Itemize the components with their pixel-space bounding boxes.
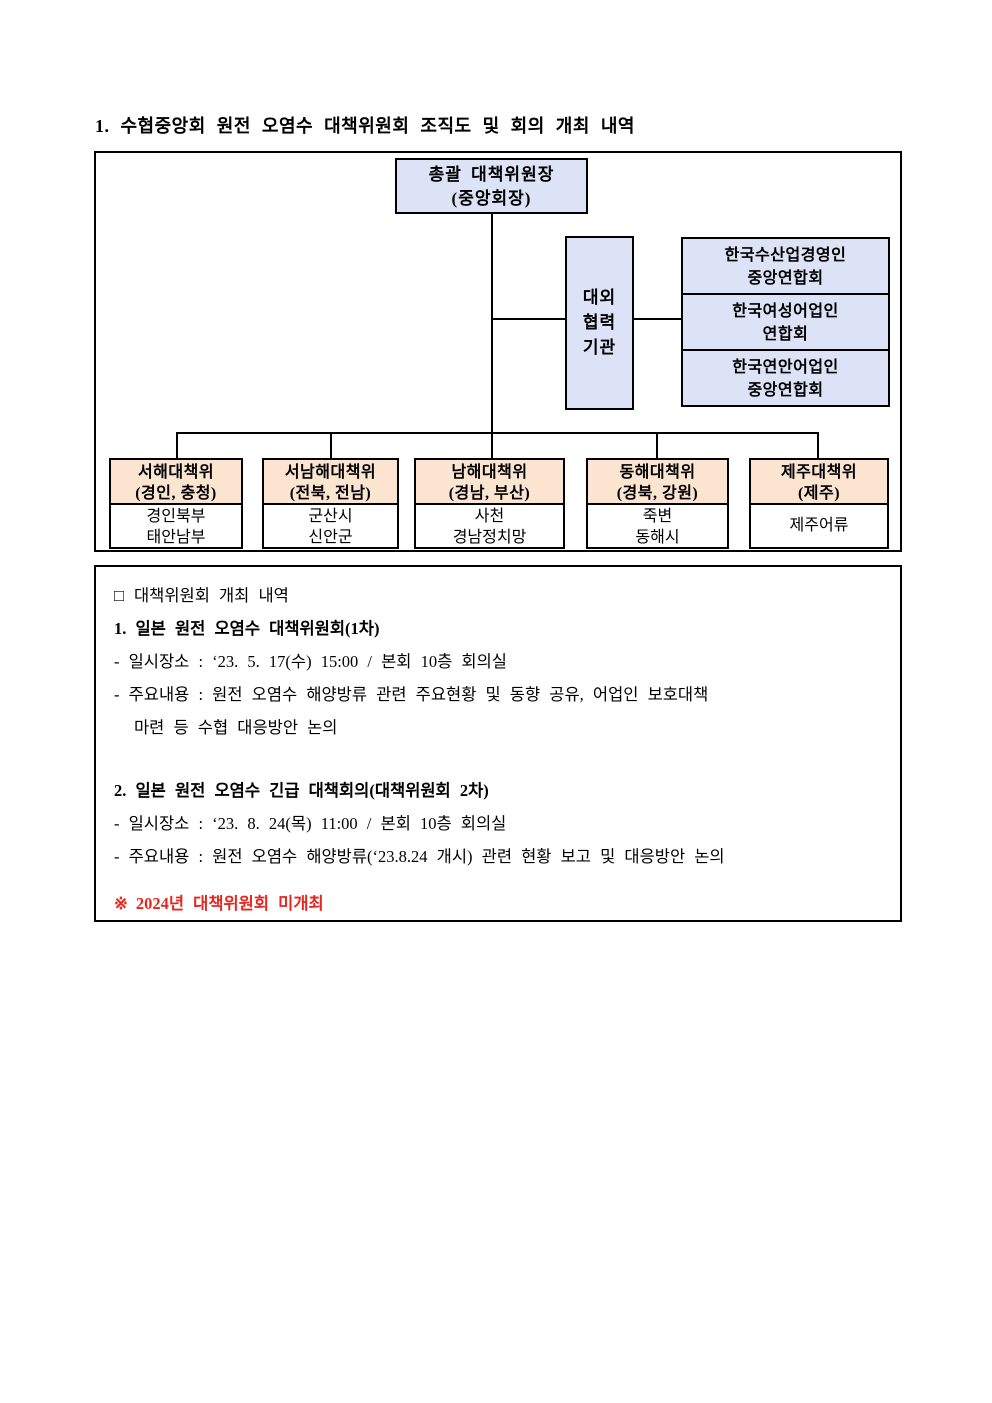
region-member: 경인북부 (111, 506, 241, 527)
external-label-line1: 대외 (567, 285, 632, 310)
external-cooperation-box: 대외 협력 기관 (565, 236, 634, 410)
meeting1-heading: 1. 일본 원전 오염수 대책위원회(1차) (114, 612, 882, 645)
external-label-line3: 기관 (567, 335, 632, 360)
region-name: 제주대책위 (751, 462, 887, 483)
meeting1-content-line2: 마련 등 수협 대응방안 논의 (114, 711, 882, 744)
connector-horizontal-external (493, 318, 565, 320)
region-members: 죽변 동해시 (586, 503, 729, 549)
meeting2-content-line1: - 주요내용 : 원전 오염수 해양방류(‘23.8.24 개시) 관련 현황 … (114, 840, 882, 873)
region-members: 사천 경남정치망 (414, 503, 565, 549)
connector-drop-4 (656, 432, 658, 458)
meeting2-heading: 2. 일본 원전 오염수 긴급 대책회의(대책위원회 2차) (114, 774, 882, 807)
region-name: 서해대책위 (111, 462, 241, 483)
regional-committee-east-sea: 동해대책위 (경북, 강원) 죽변 동해시 (586, 458, 729, 549)
region-name: 서남해대책위 (264, 462, 397, 483)
region-area: (제주) (751, 483, 887, 504)
regional-committee-jeju: 제주대책위 (제주) 제주어류 (749, 458, 889, 549)
region-member: 신안군 (264, 527, 397, 548)
regional-committee-southwest-sea: 서남해대책위 (전북, 전남) 군산시 신안군 (262, 458, 399, 549)
meetings-section-title-text: 대책위원회 개최 내역 (134, 586, 289, 605)
spacer (114, 744, 882, 774)
org-chart: 총괄 대책위원장 (중앙회장) 대외 협력 기관 한국수산업경영인 중앙연합회 … (94, 151, 902, 552)
external-org-name-line2: 중앙연합회 (683, 379, 888, 402)
region-header: 서남해대책위 (전북, 전남) (262, 458, 399, 505)
region-area: (경북, 강원) (588, 483, 727, 504)
external-orgs-stack: 한국수산업경영인 중앙연합회 한국여성어업인 연합회 한국연안어업인 중앙연합회 (681, 237, 890, 407)
checkbox-icon: □ (114, 586, 124, 605)
meeting1-when-where: - 일시장소 : ‘23. 5. 17(수) 15:00 / 본회 10층 회의… (114, 645, 882, 678)
external-org-name-line2: 중앙연합회 (683, 267, 888, 290)
no-meeting-2024-note: ※2024년 대책위원회 미개최 (114, 887, 882, 920)
connector-drop-3 (491, 432, 493, 458)
external-org-coastal-fishers: 한국연안어업인 중앙연합회 (681, 349, 890, 407)
external-label-line2: 협력 (567, 310, 632, 335)
region-header: 제주대책위 (제주) (749, 458, 889, 505)
region-member: 죽변 (588, 506, 727, 527)
no-meeting-2024-note-text: 2024년 대책위원회 미개최 (136, 894, 324, 913)
chairman-subtitle: (중앙회장) (397, 187, 586, 211)
region-members: 제주어류 (749, 503, 889, 549)
region-header: 동해대책위 (경북, 강원) (586, 458, 729, 505)
connector-horizontal-distribution (176, 432, 819, 434)
connector-drop-2 (330, 432, 332, 458)
external-org-name-line1: 한국연안어업인 (683, 356, 888, 379)
meetings-section-title: □대책위원회 개최 내역 (114, 579, 882, 612)
region-header: 남해대책위 (경남, 부산) (414, 458, 565, 505)
region-name: 동해대책위 (588, 462, 727, 483)
meeting1-content-line1: - 주요내용 : 원전 오염수 해양방류 관련 주요현황 및 동향 공유, 어업… (114, 678, 882, 711)
meeting2-when-where: - 일시장소 : ‘23. 8. 24(목) 11:00 / 본회 10층 회의… (114, 807, 882, 840)
external-org-name-line1: 한국여성어업인 (683, 300, 888, 323)
meetings-section: □대책위원회 개최 내역 1. 일본 원전 오염수 대책위원회(1차) - 일시… (94, 565, 902, 922)
connector-horizontal-orgs (634, 318, 681, 320)
region-members: 군산시 신안군 (262, 503, 399, 549)
region-area: (경남, 부산) (416, 483, 563, 504)
external-org-name-line2: 연합회 (683, 323, 888, 346)
connector-drop-1 (176, 432, 178, 458)
region-members: 경인북부 태안남부 (109, 503, 243, 549)
external-org-name-line1: 한국수산업경영인 (683, 244, 888, 267)
spacer (114, 873, 882, 887)
reference-mark-icon: ※ (114, 894, 128, 913)
region-member: 제주어류 (751, 505, 887, 547)
region-member: 태안남부 (111, 527, 241, 548)
regional-committee-west-sea: 서해대책위 (경인, 충청) 경인북부 태안남부 (109, 458, 243, 549)
region-name: 남해대책위 (416, 462, 563, 483)
connector-vertical-main (491, 214, 493, 434)
connector-drop-5 (817, 432, 819, 458)
regional-committee-south-sea: 남해대책위 (경남, 부산) 사천 경남정치망 (414, 458, 565, 549)
external-org-women-fishers: 한국여성어업인 연합회 (681, 293, 890, 351)
region-member: 군산시 (264, 506, 397, 527)
region-member: 사천 (416, 506, 563, 527)
chairman-box: 총괄 대책위원장 (중앙회장) (395, 158, 588, 214)
external-org-fisheries-managers: 한국수산업경영인 중앙연합회 (681, 237, 890, 295)
region-member: 경남정치망 (416, 527, 563, 548)
page-title: 1. 수협중앙회 원전 오염수 대책위원회 조직도 및 회의 개최 내역 (95, 112, 635, 138)
region-member: 동해시 (588, 527, 727, 548)
region-area: (경인, 충청) (111, 483, 241, 504)
chairman-title: 총괄 대책위원장 (397, 163, 586, 187)
region-header: 서해대책위 (경인, 충청) (109, 458, 243, 505)
region-area: (전북, 전남) (264, 483, 397, 504)
